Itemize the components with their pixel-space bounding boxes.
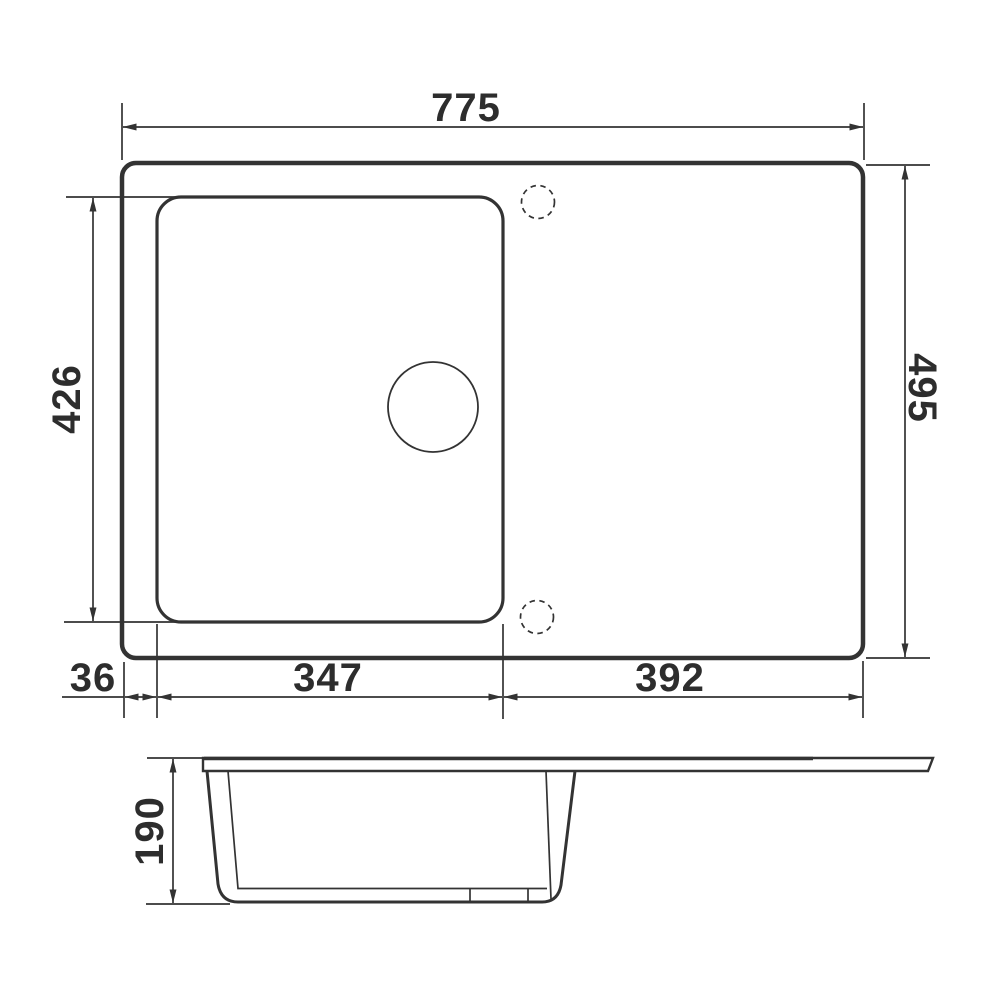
- dim-overall-width: 775: [122, 86, 864, 160]
- dim-bottom-row: 36 347 392: [62, 624, 863, 719]
- sink-technical-drawing: 775 426 495 36 347 392: [0, 0, 1000, 1000]
- bowl-profile-outer: [207, 771, 575, 902]
- dim-label-bowl-width: 347: [293, 656, 363, 700]
- side-view: 190: [128, 758, 933, 904]
- faucet-hole-bottom-icon: [521, 601, 554, 634]
- dim-overall-depth: 495: [866, 165, 944, 658]
- dim-bowl-depth: 426: [45, 197, 182, 622]
- bowl-inner-right-wall: [546, 771, 551, 899]
- dim-label-overall-depth: 495: [900, 353, 944, 423]
- drain-hole: [388, 362, 478, 452]
- faucet-hole-top-icon: [522, 186, 555, 219]
- dim-label-bowl-depth: 426: [45, 364, 89, 434]
- dim-label-drainboard-width: 392: [635, 656, 705, 700]
- bowl-profile-inner: [228, 771, 547, 889]
- dim-label-overall-width: 775: [431, 86, 501, 130]
- dim-label-bowl-height: 190: [128, 796, 172, 866]
- drawing-svg: 775 426 495 36 347 392: [0, 0, 1000, 1000]
- dim-label-bowl-left-offset: 36: [70, 656, 117, 700]
- bowl-outline: [157, 197, 503, 622]
- sink-outline: [122, 163, 863, 658]
- dim-bowl-height: 190: [128, 758, 230, 904]
- top-view: 775 426 495 36 347 392: [45, 86, 944, 719]
